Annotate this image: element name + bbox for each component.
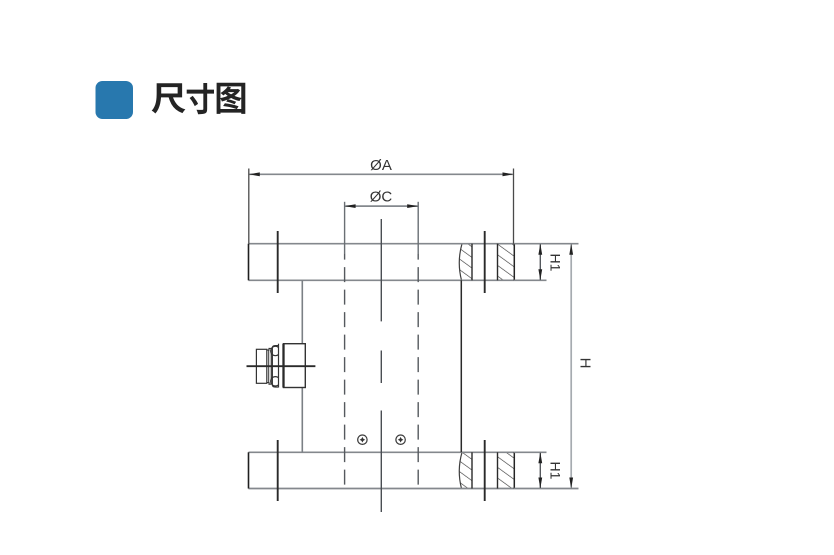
svg-text:ØA: ØA xyxy=(370,157,392,174)
svg-text:ØC: ØC xyxy=(370,189,393,206)
svg-text:H1: H1 xyxy=(548,462,564,480)
svg-text:H: H xyxy=(577,358,594,369)
svg-text:H1: H1 xyxy=(548,254,564,272)
